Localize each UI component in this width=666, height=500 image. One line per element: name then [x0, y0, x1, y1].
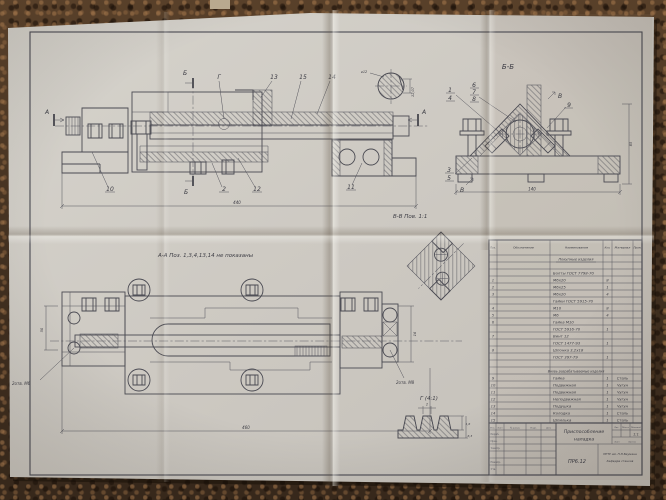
paper-vignette	[8, 13, 654, 486]
photo-scene: А А Б Б Г 13 15 14 10 2 12 11 440 ⌀12 12…	[0, 0, 666, 500]
tape-scrap	[210, 0, 230, 9]
